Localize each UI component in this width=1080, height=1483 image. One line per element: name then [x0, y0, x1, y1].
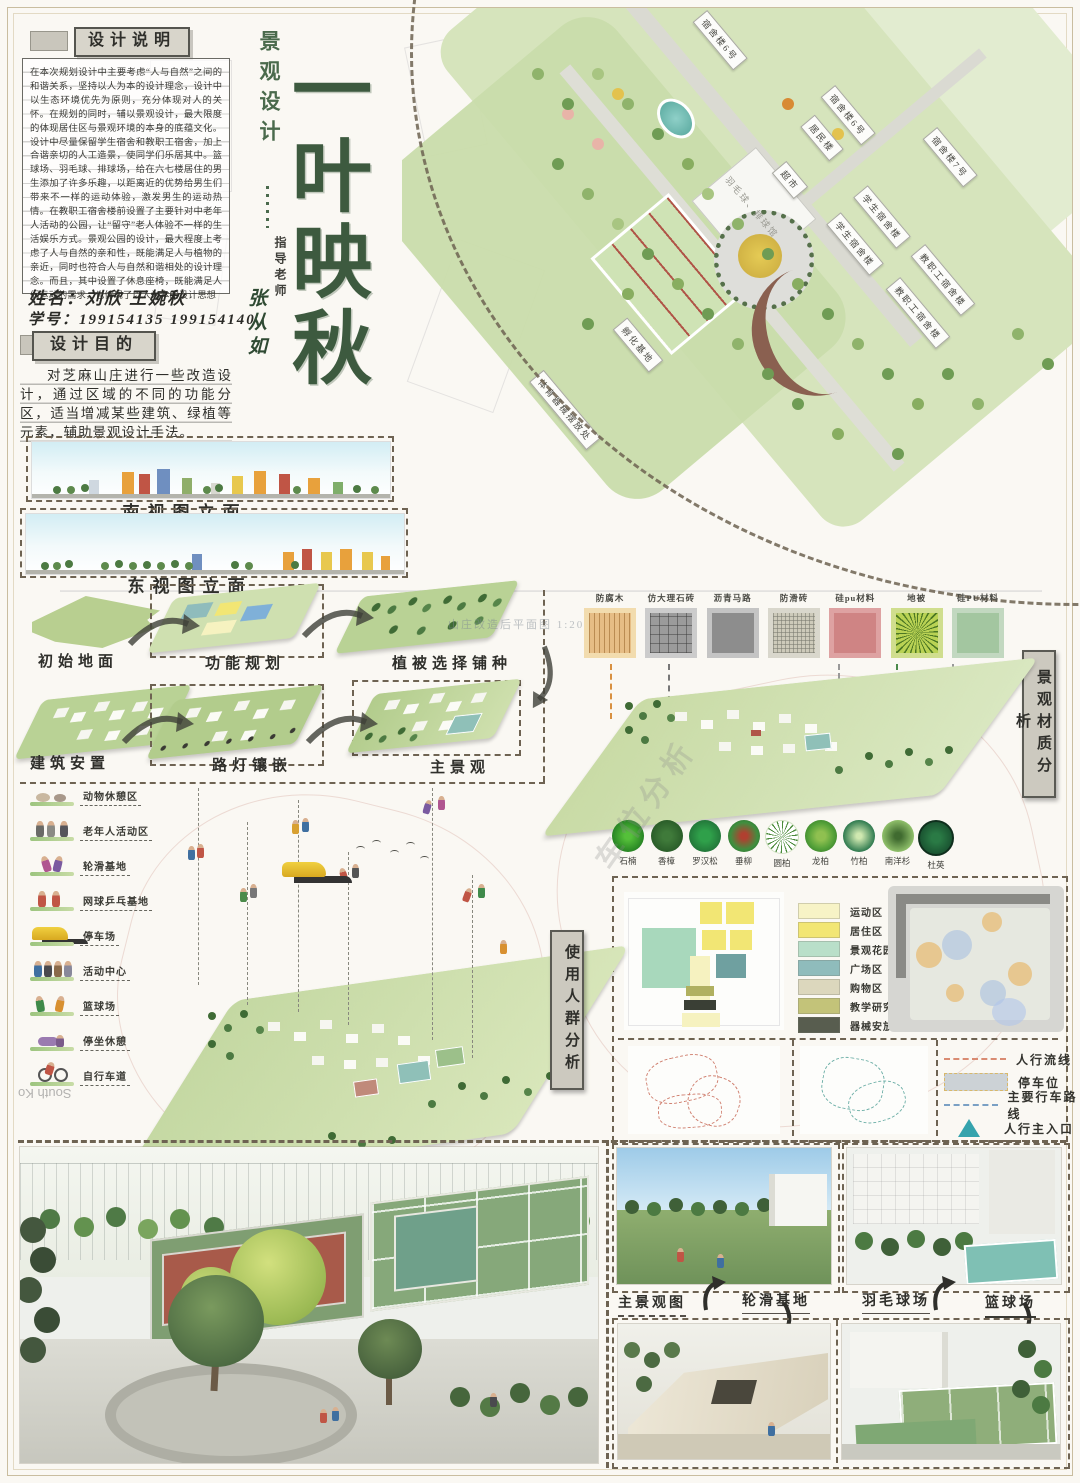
person-shape	[56, 1035, 64, 1047]
plant-label: 龙柏	[803, 855, 839, 867]
zoning-plan	[624, 892, 784, 1030]
ground-strip	[30, 802, 74, 806]
section-divider	[606, 1140, 609, 1468]
person-shape	[292, 820, 299, 834]
zone-patch-residential	[726, 902, 754, 924]
white-building	[989, 1150, 1055, 1234]
flow-legend-label: 人行流线	[1016, 1051, 1072, 1068]
elevation-building	[362, 552, 373, 570]
skating-base-photo	[618, 1324, 830, 1459]
user-group-item: 网球乒乓基地	[30, 885, 210, 911]
tree-row	[855, 1232, 873, 1250]
ground-strip	[30, 872, 74, 876]
material-texture	[589, 613, 631, 653]
elevation-building	[333, 482, 343, 494]
plant-label: 杜英	[918, 859, 954, 871]
user-group-label: 动物休憩区	[80, 788, 141, 806]
plant-label: 罗汉松	[687, 855, 723, 867]
main-view-photo	[617, 1148, 831, 1284]
process-arrow	[304, 706, 378, 748]
court-surface-teal	[394, 1205, 478, 1291]
author-id-label: 学号：	[28, 312, 79, 328]
person-shape	[188, 846, 195, 860]
white-building	[850, 1332, 948, 1388]
ground-strip	[30, 977, 74, 981]
vehicle-route-line	[944, 1104, 998, 1106]
user-group-label: 停车场	[80, 928, 119, 946]
person-shape	[44, 961, 52, 977]
elevation-building	[182, 478, 192, 494]
person-shape	[332, 1407, 339, 1421]
advisor-name: 张从如	[242, 288, 269, 378]
zone-swatch	[798, 979, 840, 995]
material-texture	[650, 613, 692, 653]
plant-item: 垂柳	[726, 820, 762, 871]
person-shape	[54, 961, 62, 977]
parking-swatch	[944, 1073, 1008, 1091]
plant-circle	[765, 820, 799, 854]
skater-illustration	[30, 850, 74, 876]
flow-legend-row: 主要行车路线	[944, 1094, 1080, 1116]
zone-patch-residential	[702, 930, 726, 950]
author-id-row: 学号：199154135 199154140	[28, 308, 256, 329]
animals-illustration	[30, 780, 74, 806]
person-shape	[35, 995, 46, 1012]
zone-patch-plaza	[716, 954, 746, 978]
elevation-building	[321, 552, 332, 570]
elevation-trees	[53, 486, 61, 494]
bird-mark	[372, 840, 381, 846]
center-tree-canopy	[168, 1275, 264, 1367]
tree-cluster	[625, 702, 633, 710]
material-label: 防腐木	[596, 592, 625, 604]
person-shape	[302, 818, 309, 832]
author-names: 刘欣 王婉秋	[85, 289, 186, 308]
photo-road	[842, 1444, 1060, 1459]
person-shape	[197, 844, 204, 858]
material-swatch-marble	[645, 608, 697, 658]
person-shape	[320, 1409, 327, 1423]
process-step-label: 建筑安置	[30, 752, 110, 773]
zone-swatch	[798, 960, 840, 976]
zone-patch-residential	[730, 930, 752, 950]
material-label: 沥青马路	[714, 592, 752, 604]
photo-ground	[618, 1434, 830, 1459]
panel-divider	[936, 1040, 938, 1136]
resting-illustration	[30, 1025, 74, 1051]
user-group-panel-label: 使用人群分析	[550, 930, 584, 1090]
plant-item: 香樟	[649, 820, 685, 871]
material-texture	[712, 613, 754, 653]
material-texture	[834, 613, 876, 653]
material-label: 硅pu材料	[835, 592, 875, 604]
plant-label: 垂柳	[726, 855, 762, 867]
zoning-patch	[240, 604, 273, 622]
user-group-label: 老年人活动区	[80, 823, 152, 841]
red-accent	[751, 730, 761, 736]
material-swatch-groundcover	[891, 608, 943, 658]
process-arrow	[300, 600, 374, 642]
elevation-building	[381, 556, 390, 570]
main-landscape-render	[20, 1147, 598, 1463]
zone-patch-teaching	[686, 986, 714, 996]
person-shape	[64, 961, 72, 977]
material-label: 地被	[907, 592, 926, 604]
purpose-body: 对芝麻山庄进行一些改造设计，通过区域的不同的功能分区，适当增减某些建筑、绿植等元…	[20, 366, 232, 444]
plant-circle	[882, 820, 914, 852]
process-step-label: 功能规划	[205, 652, 285, 673]
ground-strip	[30, 837, 74, 841]
plant-label: 圆柏	[764, 857, 800, 869]
person-shape	[40, 855, 53, 873]
flow-legend-row: 人行流线	[944, 1048, 1080, 1070]
elevation-building	[302, 549, 312, 570]
elevation-building	[139, 474, 150, 494]
flow-legend: 人行流线 停车位 主要行车路线 人行主入口	[944, 1048, 1080, 1140]
flow-legend-row: 人行主入口	[944, 1116, 1080, 1140]
plant-circle	[728, 820, 760, 852]
user-group-item: 停车场	[30, 920, 210, 946]
user-group-item: 老年人活动区	[30, 815, 210, 841]
building-cluster	[268, 1022, 280, 1031]
process-arrow	[120, 706, 194, 748]
plant-label: 南洋杉	[880, 855, 916, 867]
zone-label: 广场区	[850, 961, 883, 976]
road-strip	[896, 894, 906, 978]
elevation-building	[232, 476, 243, 494]
material-label: 硅PU材料	[957, 592, 999, 604]
person-shape	[352, 864, 359, 878]
user-group-label: 停坐休憩	[80, 1033, 130, 1051]
south-elevation-panel	[26, 436, 394, 502]
person-shape	[768, 1422, 775, 1436]
person-shape	[250, 884, 257, 898]
plant-item: 杜英	[918, 820, 954, 871]
user-group-label: 网球乒乓基地	[80, 893, 152, 911]
design-note-header: 设计说明	[74, 27, 190, 57]
wheel-shape	[54, 1068, 68, 1082]
leader-line	[472, 875, 473, 1058]
user-group-item: 动物休憩区	[30, 780, 210, 806]
material-item: 硅PU材料	[952, 592, 1004, 658]
material-label: 仿大理石砖	[648, 592, 696, 604]
material-swatch-pu-green	[952, 608, 1004, 658]
process-step-label: 路灯镶嵌	[212, 754, 292, 775]
leader-line	[348, 852, 349, 1025]
plant-circle	[918, 820, 954, 856]
header-tab	[30, 31, 68, 51]
elevation-building	[211, 483, 220, 494]
zone-swatch	[798, 1017, 840, 1033]
plant-item: 圆柏	[764, 820, 800, 871]
person-shape	[54, 995, 65, 1012]
person-shape	[34, 961, 42, 977]
process-step-label: 初始地面	[38, 650, 118, 671]
parking-node	[946, 984, 964, 1002]
east-elevation-graphic	[25, 513, 405, 575]
car-shape	[32, 927, 68, 940]
zone-swatch	[798, 998, 840, 1014]
poster: 设计说明 在本次规划设计中主要考虑“人与自然”之间的和谐关系，坚持以人为本的设计…	[0, 0, 1080, 1483]
material-texture	[896, 613, 938, 653]
elevation-building	[122, 472, 134, 494]
person-shape	[240, 888, 247, 902]
cyclist-illustration	[30, 1060, 74, 1086]
court-patch	[446, 713, 483, 735]
gallery-arrow-up	[700, 1276, 726, 1312]
badminton-court-photo	[847, 1148, 1061, 1284]
material-item: 仿大理石砖	[645, 592, 697, 658]
court-patch	[353, 1078, 379, 1097]
person-shape	[490, 1393, 497, 1407]
title-dots	[266, 186, 269, 228]
person-shape	[478, 884, 485, 898]
basketball-illustration	[30, 990, 74, 1016]
author-name-row: 姓名：刘欣 王婉秋	[28, 284, 186, 309]
plant-item: 南洋杉	[880, 820, 916, 871]
zone-patch-sport	[682, 1013, 720, 1027]
zone-patch-equipment	[684, 1000, 716, 1010]
crowd-illustration	[30, 955, 74, 981]
author-ids: 199154135 199154140	[79, 312, 256, 328]
material-item: 硅pu材料	[829, 592, 881, 658]
ramp-opening	[711, 1380, 757, 1404]
elevation-building	[279, 474, 290, 494]
plants-row: 石楠 香樟 罗汉松 垂柳 圆柏 龙柏 竹柏 南洋杉 杜英	[610, 820, 954, 871]
zone-patch-garden	[642, 928, 696, 988]
court-patch	[804, 733, 832, 752]
tree-canopy	[358, 1319, 422, 1379]
person-shape	[36, 821, 44, 837]
white-building	[853, 1154, 979, 1224]
person-shape	[677, 1248, 684, 1262]
building-cluster	[384, 699, 401, 710]
user-group-label: 轮滑基地	[80, 858, 130, 876]
elevation-building	[254, 471, 266, 494]
plant-circle	[805, 820, 837, 852]
court-patch	[435, 1046, 465, 1068]
user-group-label: 篮球场	[80, 998, 119, 1016]
process-step-label: 主景观	[430, 756, 490, 777]
parking-node	[916, 942, 942, 968]
teal-court	[964, 1239, 1059, 1284]
author-name-label: 姓名：	[28, 289, 85, 308]
south-elevation-graphic	[31, 441, 391, 499]
plaza-node	[942, 930, 972, 960]
plant-item: 龙柏	[803, 820, 839, 871]
bird-mark	[406, 842, 415, 848]
person-shape	[500, 940, 507, 954]
plant-circle	[843, 820, 875, 852]
dark-tree-mass	[20, 1217, 46, 1243]
parking-node	[982, 912, 1002, 932]
process-arrow	[126, 608, 200, 650]
design-note-body: 在本次规划设计中主要考虑“人与自然”之间的和谐关系，坚持以人为本的设计理念，设计…	[22, 58, 230, 294]
zone-label: 购物区	[850, 980, 883, 995]
person-shape	[52, 891, 60, 907]
person-shape	[438, 796, 445, 810]
car-shape	[282, 862, 326, 877]
zone-patch-residential	[700, 902, 722, 924]
person-shape	[38, 891, 46, 907]
gallery-label-badminton: 羽毛球场	[862, 1290, 930, 1314]
tree-cluster	[208, 1012, 216, 1020]
parking-analysis-plan	[888, 886, 1064, 1032]
material-label: 防滑砖	[780, 592, 809, 604]
person-shape	[717, 1254, 724, 1268]
entrance-triangle	[958, 1119, 980, 1137]
tennis-players-illustration	[30, 885, 74, 911]
plan-caption-watermark: 山庄改造后平面图 1:2000	[448, 616, 599, 632]
elevation-building	[283, 552, 294, 570]
flow-legend-label: 人行主入口	[1004, 1120, 1074, 1137]
plant-item: 罗汉松	[687, 820, 723, 871]
animal-shape	[36, 793, 50, 802]
tree-cluster	[624, 1342, 640, 1358]
user-group-item: 轮滑基地	[30, 850, 210, 876]
zone-label: 运动区	[850, 904, 883, 919]
material-swatch-asphalt	[707, 608, 759, 658]
bush-cluster	[450, 1387, 470, 1407]
material-swatch-wood	[584, 608, 636, 658]
map-watermark: South Ko	[18, 1086, 72, 1101]
basketball-court-photo	[842, 1324, 1060, 1459]
person-shape	[60, 821, 68, 837]
plaza-node	[992, 998, 1026, 1026]
material-item: 沥青马路	[707, 592, 759, 658]
person-shape	[47, 821, 55, 837]
tree-row	[625, 1200, 639, 1214]
gallery-divider	[836, 1320, 838, 1463]
leader-line	[247, 822, 248, 1005]
bench-shape	[38, 1037, 58, 1046]
gallery-arrow-up	[930, 1276, 956, 1312]
material-swatch-pu-red	[829, 608, 881, 658]
zone-label: 居住区	[850, 923, 883, 938]
zoning-patch	[201, 620, 237, 636]
parking-node	[1008, 962, 1032, 986]
east-elevation-panel	[20, 508, 408, 578]
elderly-illustration	[30, 815, 74, 841]
bird-mark	[356, 846, 365, 852]
purpose-header: 设计目的	[32, 331, 156, 361]
user-group-label: 活动中心	[80, 963, 130, 981]
process-step-label: 植被选择铺种	[392, 652, 512, 673]
elevation-building	[157, 469, 170, 494]
bird-mark	[420, 856, 429, 862]
ground-strip	[30, 1012, 74, 1016]
white-building	[769, 1174, 827, 1226]
plant-label: 竹柏	[841, 855, 877, 867]
pedestrian-flow-line	[944, 1058, 1006, 1060]
zone-swatch	[798, 922, 840, 938]
panel-divider	[792, 1040, 794, 1136]
building-cluster	[53, 707, 70, 718]
zoning-patch	[214, 601, 242, 616]
user-group-label: 自行车道	[80, 1068, 130, 1086]
material-swatch-antislip	[768, 608, 820, 658]
elevation-building	[89, 480, 99, 494]
zone-swatch	[798, 903, 840, 919]
ground-strip	[30, 1047, 74, 1051]
plant-label: 香樟	[649, 855, 685, 867]
pedestrian-flow-plan	[628, 1046, 780, 1134]
animal-shape	[54, 794, 66, 802]
vehicle-route-plan	[800, 1046, 928, 1134]
person-shape	[52, 855, 64, 872]
gallery-label-main-view: 主景观图	[618, 1292, 686, 1317]
elevation-building	[340, 549, 352, 570]
bird-mark	[390, 850, 399, 856]
road-strip	[898, 894, 1050, 904]
ground-strip	[30, 907, 74, 911]
building-cluster	[675, 712, 687, 721]
material-item: 地被	[891, 592, 943, 658]
ground-strip	[30, 942, 74, 946]
car-illustration	[30, 920, 74, 946]
plant-circle	[689, 820, 721, 852]
material-texture	[957, 613, 999, 653]
zone-swatch	[798, 941, 840, 957]
plant-item: 竹柏	[841, 820, 877, 871]
elevation-building	[192, 554, 202, 570]
material-texture	[773, 613, 815, 653]
leader-line	[432, 788, 433, 1040]
tree-cluster	[1018, 1340, 1036, 1358]
panel-divider	[618, 1038, 1058, 1040]
elevation-trees	[41, 562, 49, 570]
flow-legend-label: 主要行车路线	[1008, 1088, 1080, 1122]
material-item: 防腐木	[584, 592, 636, 658]
materials-row: 防腐木 仿大理石砖 沥青马路 防滑砖 硅pu材料 地被 硅PU材料	[584, 592, 1004, 658]
elevation-building	[308, 478, 320, 494]
material-item: 防滑砖	[768, 592, 820, 658]
plant-circle	[651, 820, 683, 852]
leader-line	[198, 788, 199, 985]
poster-title: 一叶映秋	[284, 48, 364, 428]
